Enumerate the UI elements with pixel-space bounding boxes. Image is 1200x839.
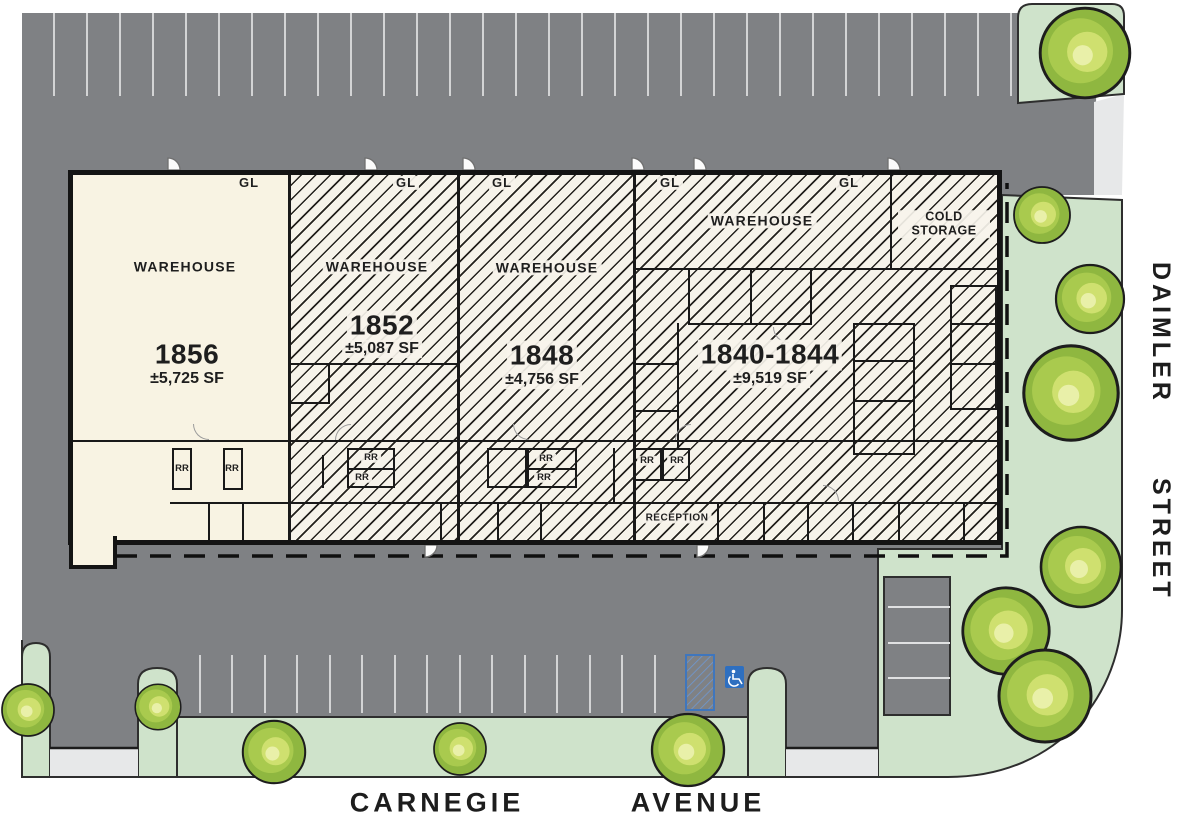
interior-wall (440, 502, 442, 540)
sidewalk (1094, 94, 1124, 195)
office-room (950, 285, 997, 410)
interior-wall (527, 468, 577, 470)
street-carnegie-name: CARNEGIE (350, 788, 525, 819)
unit-1856-area-label: ±5,725 SF (150, 370, 224, 388)
gl-door-label: GL (836, 176, 862, 190)
interior-wall (717, 502, 719, 540)
unit-1840-1844-number-label: 1840-1844 (698, 340, 842, 371)
tree-icon (1056, 265, 1124, 333)
street-daimler-type: STREET (1146, 478, 1175, 601)
unit-1852-area-label: ±5,087 SF (342, 340, 422, 358)
rr-label: RR (534, 473, 554, 483)
interior-wall (852, 502, 854, 540)
tree-icon (135, 684, 181, 730)
tree-icon (243, 721, 305, 783)
unit-1840-1844-type-label: WAREHOUSE (708, 213, 817, 228)
unit-1848-type-label: WAREHOUSE (493, 260, 602, 275)
office-room (750, 268, 812, 325)
gl-door-label: GL (393, 176, 419, 190)
tree-icon (1041, 527, 1121, 607)
demising-wall (633, 175, 636, 540)
rr-label: RR (225, 464, 239, 474)
tree-icon (999, 650, 1091, 742)
rr-label: RR (667, 456, 687, 466)
interior-wall (950, 363, 997, 365)
unit-1852-type-label: WAREHOUSE (323, 259, 432, 274)
street-daimler-name: DAIMLER (1146, 262, 1175, 404)
unit-1840-1844-area-label: ±9,519 SF (730, 370, 810, 388)
unit-1852-number-label: 1852 (347, 311, 417, 342)
interior-wall (328, 363, 330, 404)
interior-wall (633, 363, 677, 365)
interior-wall (322, 455, 324, 488)
cold-storage-label: COLD STORAGE (898, 210, 990, 238)
interior-wall (807, 502, 809, 540)
building-notch (69, 536, 117, 569)
interior-wall (288, 363, 459, 365)
interior-wall (853, 400, 915, 402)
interior-wall (242, 504, 244, 540)
interior-wall (890, 175, 892, 268)
unit-1848-number-label: 1848 (507, 341, 577, 372)
gl-door-label: GL (657, 176, 683, 190)
rr-label: RR (175, 464, 189, 474)
site-plan: GL GL GL GL GL WAREHOUSE 1856 ±5,725 SF … (0, 0, 1200, 839)
rr-label: RR (361, 453, 381, 463)
tree-icon (434, 723, 486, 775)
unit-1856-number-label: 1856 (155, 340, 219, 371)
tree-icon (2, 684, 54, 736)
interior-wall (898, 502, 900, 540)
landscape-finger-2 (748, 668, 786, 777)
demising-wall (457, 175, 460, 540)
interior-wall (633, 410, 677, 412)
door-swing-icon (193, 424, 209, 440)
interior-wall (497, 502, 499, 540)
office-room (853, 323, 915, 455)
interior-wall (950, 323, 997, 325)
interior-wall (853, 360, 915, 362)
interior-wall (347, 468, 395, 470)
unit-1848-area-label: ±4,756 SF (502, 371, 582, 389)
accessible-parking-icon (725, 666, 744, 688)
reception-label: RECEPTION (643, 513, 712, 524)
unit-1856-type-label: WAREHOUSE (134, 259, 237, 274)
interior-wall (963, 502, 965, 540)
rr-label: RR (536, 454, 556, 464)
interior-wall (763, 502, 765, 540)
office-room (688, 268, 752, 325)
rr-label: RR (352, 473, 372, 483)
tree-icon (1040, 8, 1130, 98)
rr-label: RR (637, 456, 657, 466)
demising-wall (288, 175, 291, 540)
interior-wall (540, 502, 542, 540)
parking-stub (884, 577, 950, 715)
street-carnegie-type: AVENUE (631, 788, 766, 819)
tree-icon (1024, 346, 1118, 440)
office-room (487, 448, 527, 488)
gl-door-label: GL (239, 176, 259, 190)
interior-wall (208, 504, 210, 540)
gl-door-label: GL (489, 176, 515, 190)
interior-wall (613, 448, 615, 502)
tree-icon (652, 714, 724, 786)
interior-wall (170, 502, 997, 504)
interior-wall (288, 402, 330, 404)
tree-icon (1014, 187, 1070, 243)
